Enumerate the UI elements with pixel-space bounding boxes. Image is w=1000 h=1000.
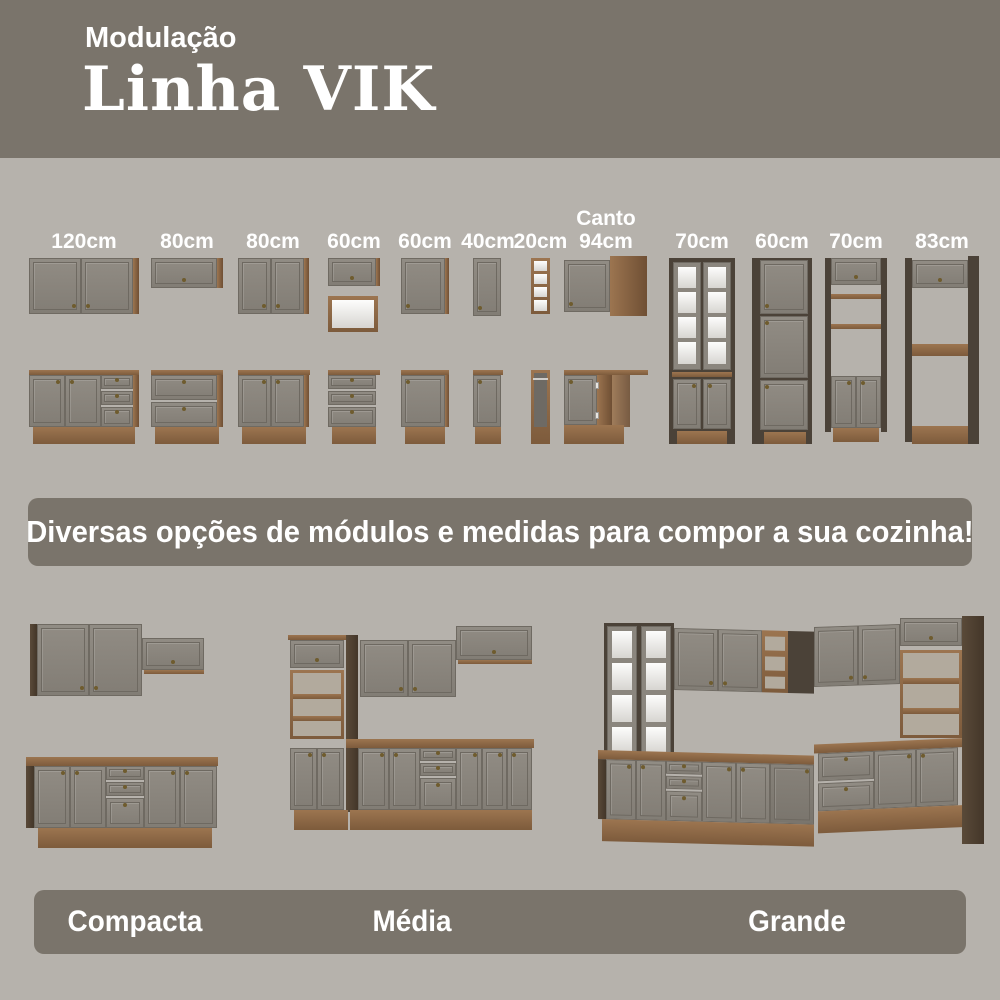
- side-panel: [905, 258, 912, 442]
- open-shelf-frame: [290, 670, 344, 739]
- door: [389, 748, 420, 810]
- open-shelf-frame: [762, 630, 788, 693]
- open-base-interior: [534, 373, 547, 427]
- tall-carcass: [752, 258, 812, 444]
- wood-panel: [445, 375, 449, 427]
- toe-kick: [405, 427, 445, 444]
- module-size-label: Canto 94cm: [549, 202, 663, 254]
- door: [401, 258, 445, 314]
- kitchen-label-grande: Grande: [748, 905, 846, 939]
- wood-strip: [458, 660, 532, 664]
- door: [70, 766, 106, 828]
- kitchen-label-compacta: Compacta: [68, 905, 203, 939]
- module-canto-94cm: Canto 94cm: [561, 202, 651, 448]
- drawer: [328, 375, 376, 389]
- module-40cm: 40cm: [469, 202, 507, 448]
- wood-shelf: [293, 716, 341, 721]
- wood-shelf: [672, 372, 732, 377]
- wood-panel: [304, 375, 309, 427]
- glass-door: [703, 262, 731, 370]
- glass-pane: [646, 727, 666, 753]
- side-panel: [598, 759, 606, 819]
- glass-pane: [612, 695, 632, 722]
- door: [916, 747, 958, 807]
- tall-open-tower: [825, 258, 887, 444]
- glass-pane: [678, 317, 696, 338]
- drawer: [666, 776, 702, 790]
- glass-door: [673, 262, 701, 370]
- drawer: [666, 791, 702, 822]
- door: [65, 375, 101, 427]
- door: [81, 258, 133, 314]
- wood-shelf: [912, 344, 968, 356]
- glass-pane: [708, 267, 726, 288]
- glass-pane: [678, 292, 696, 313]
- wood-shelf: [293, 694, 341, 699]
- wood-base: [912, 426, 968, 444]
- base-run-left: [598, 750, 814, 851]
- module-size-label: 80cm: [222, 202, 324, 254]
- drawer: [106, 766, 144, 780]
- glass-hutch: [604, 623, 674, 759]
- kitchen-grande: [578, 598, 990, 860]
- flap-door: [900, 618, 962, 646]
- glass-pane: [708, 342, 726, 364]
- header-band: Modulação Linha VIK: [0, 0, 1000, 158]
- door: [874, 749, 916, 809]
- module-size-label: 60cm: [312, 202, 396, 254]
- flap-door: [151, 258, 217, 288]
- door: [238, 375, 271, 427]
- countertop: [26, 757, 218, 766]
- door: [482, 748, 507, 810]
- shelf-interior: [765, 656, 785, 671]
- wood-shelf: [831, 324, 881, 329]
- door: [473, 258, 501, 316]
- glass-pane: [708, 292, 726, 313]
- shelf-interior: [765, 676, 785, 689]
- glass-door: [641, 626, 671, 756]
- tall-side-panel: [962, 616, 984, 844]
- base-run-right: [814, 738, 964, 840]
- toe-kick: [677, 431, 727, 444]
- door: [507, 748, 532, 810]
- door: [856, 376, 881, 428]
- kitchen-label-media: Média: [372, 905, 451, 939]
- drawer: [818, 781, 874, 811]
- wood-shelf: [831, 294, 881, 299]
- door: [271, 375, 304, 427]
- wall-run-left: [674, 628, 814, 698]
- wood-column: [346, 635, 358, 812]
- door: [703, 379, 731, 429]
- door: [408, 640, 456, 697]
- door-panel: [760, 380, 808, 430]
- flap-door: [328, 258, 376, 286]
- toe-kick: [475, 427, 501, 444]
- drawer: [151, 375, 217, 400]
- module-size-label: 83cm: [893, 202, 991, 254]
- glass-door: [607, 626, 637, 756]
- door: [34, 766, 70, 828]
- door: [702, 762, 736, 823]
- flap-door: [290, 640, 344, 668]
- glass-pane: [678, 342, 696, 364]
- wood-panel: [217, 375, 223, 427]
- wood-panel: [30, 624, 37, 696]
- glass-pane: [612, 727, 632, 753]
- module-60cm-flap-niche: 60cm: [324, 202, 384, 448]
- module-83cm-fridge-frame: 83cm: [905, 202, 979, 448]
- module-size-label: 70cm: [809, 202, 903, 254]
- toe-kick: [332, 427, 376, 444]
- drawer: [328, 391, 376, 405]
- corner-door: [770, 764, 814, 825]
- shelf-interior: [765, 636, 785, 651]
- wood-panel: [133, 258, 139, 314]
- door: [636, 760, 666, 821]
- wall-run-corner: [814, 624, 900, 689]
- fridge-frame: [905, 256, 979, 444]
- corner-post: [788, 631, 814, 694]
- wood-panel: [133, 375, 139, 427]
- module-size-label: 60cm: [385, 202, 465, 254]
- door: [290, 748, 317, 810]
- door: [37, 624, 89, 696]
- door-panel: [760, 316, 808, 378]
- toe-kick: [38, 828, 212, 848]
- hinge: [595, 412, 599, 419]
- module-size-label: 120cm: [14, 202, 154, 254]
- open-shelf-tower: [900, 650, 962, 738]
- glass-pane: [646, 631, 666, 658]
- countertop: [346, 739, 534, 748]
- wood-shelf: [903, 678, 959, 684]
- toe-kick: [242, 427, 306, 444]
- wood-panel: [217, 258, 223, 288]
- side-panel: [26, 766, 34, 828]
- drawer: [106, 798, 144, 828]
- toe-kick: [602, 819, 814, 847]
- wood-panel: [376, 258, 380, 286]
- tagline-banner: Diversas opções de módulos e medidas par…: [28, 498, 972, 566]
- drawer: [101, 391, 133, 405]
- drawer: [420, 778, 456, 810]
- drawer: [151, 402, 217, 427]
- shelf-niche: [534, 274, 547, 284]
- door: [858, 624, 900, 685]
- folding-panel: [612, 375, 630, 427]
- glass-pane: [646, 695, 666, 722]
- module-80cm-doors: 80cm: [234, 202, 312, 448]
- door: [180, 766, 217, 828]
- toe-kick: [33, 427, 135, 444]
- module-120cm: 120cm: [26, 202, 142, 448]
- wood-strip: [144, 670, 204, 674]
- glass-pane: [646, 663, 666, 690]
- glass-pane: [678, 267, 696, 288]
- corner-base-door: [564, 375, 597, 425]
- door: [29, 375, 65, 427]
- drawer: [420, 763, 456, 776]
- door-panel: [760, 260, 808, 314]
- corner-wall-door: [564, 260, 610, 312]
- toe-kick: [833, 428, 879, 442]
- door: [317, 748, 344, 810]
- kitchen-compacta: [26, 618, 272, 850]
- door: [831, 376, 856, 428]
- module-size-label: 40cm: [457, 202, 519, 254]
- drawer: [101, 375, 133, 389]
- hinge: [595, 382, 599, 389]
- toe-kick: [564, 425, 624, 444]
- flap-door: [831, 258, 881, 285]
- drawer: [420, 748, 456, 761]
- door: [89, 624, 142, 696]
- wood-shelf: [903, 708, 959, 714]
- module-60cm-tall: 60cm: [748, 202, 816, 448]
- shelf-niche: [534, 300, 547, 311]
- glass-pane: [612, 663, 632, 690]
- door: [736, 763, 770, 824]
- door: [29, 258, 81, 314]
- door: [238, 258, 271, 314]
- towel-rail: [533, 378, 548, 380]
- module-60cm-door: 60cm: [397, 202, 453, 448]
- glass-pane: [612, 631, 632, 658]
- door: [673, 379, 701, 429]
- module-70cm-glass-hutch: 70cm: [666, 202, 738, 448]
- toe-kick: [764, 432, 806, 444]
- module-80cm-flap: 80cm: [147, 202, 227, 448]
- drawer: [106, 782, 144, 796]
- door: [456, 748, 482, 810]
- open-niche: [332, 300, 374, 328]
- door: [814, 625, 858, 687]
- wood-panel: [445, 258, 449, 314]
- header-kicker: Modulação: [85, 22, 236, 55]
- folding-panel: [597, 375, 612, 427]
- toe-kick: [155, 427, 219, 444]
- wood-panel: [304, 258, 309, 314]
- drawer: [101, 407, 133, 427]
- poster: Modulação Linha VIK 120cm 80cm 80cm: [0, 0, 1000, 1000]
- shelf-interior: [903, 653, 959, 735]
- tagline-text: Diversas opções de módulos e medidas par…: [26, 514, 973, 550]
- glass-pane: [708, 317, 726, 338]
- flap-door: [456, 626, 532, 660]
- module-70cm-tower: 70cm: [821, 202, 891, 448]
- flap-door: [142, 638, 204, 670]
- drawer: [666, 761, 702, 775]
- flap-door: [912, 260, 968, 288]
- toe-kick: [350, 810, 532, 830]
- drawer: [818, 751, 874, 781]
- shelf-niche: [534, 261, 547, 271]
- door: [401, 375, 445, 427]
- side-panel: [968, 256, 979, 444]
- shelf-interior: [293, 673, 341, 736]
- tall-carcass: [669, 258, 735, 444]
- page-title: Linha VIK: [82, 54, 435, 125]
- door: [358, 748, 389, 810]
- door: [606, 759, 636, 820]
- drawer: [328, 407, 376, 427]
- side-panel: [881, 258, 887, 432]
- door: [674, 628, 718, 691]
- door: [718, 629, 762, 692]
- door: [144, 766, 180, 828]
- shelf-niche: [534, 287, 547, 297]
- door: [271, 258, 304, 314]
- toe-kick: [294, 810, 348, 830]
- door: [360, 640, 408, 697]
- corner-wood-panel: [610, 256, 647, 316]
- kitchen-media: [286, 600, 534, 850]
- door: [473, 375, 501, 427]
